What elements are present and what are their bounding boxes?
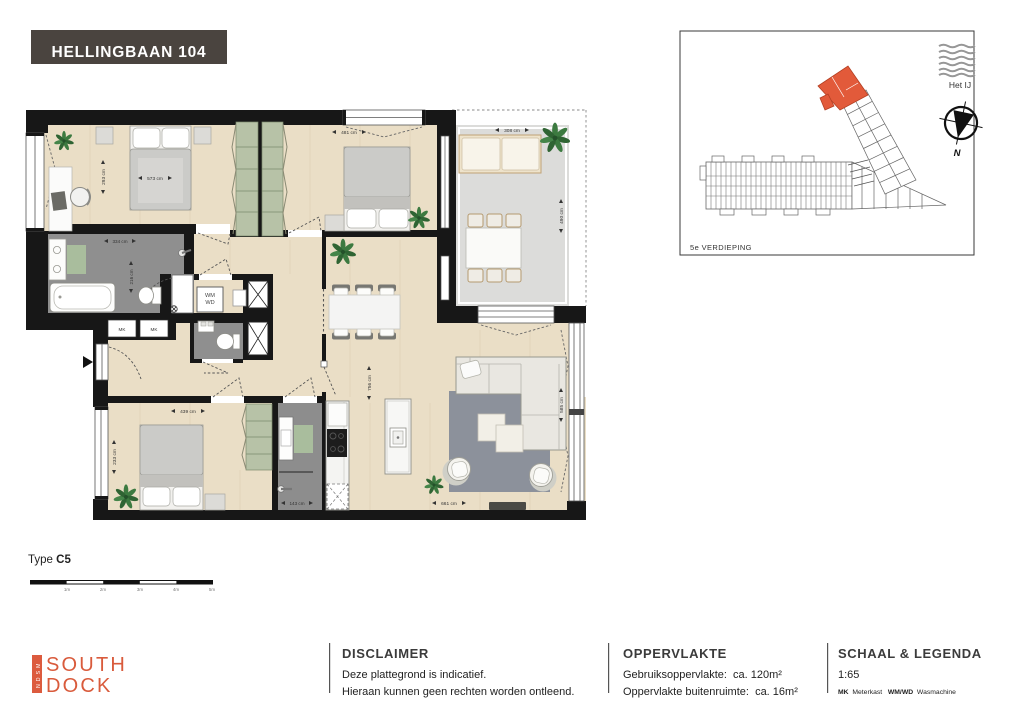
svg-text:573 cm: 573 cm <box>147 176 163 182</box>
svg-text:5m: 5m <box>209 587 216 592</box>
svg-text:3m: 3m <box>137 587 144 592</box>
svg-text:2m: 2m <box>100 587 107 592</box>
svg-text:216 cm: 216 cm <box>129 269 134 284</box>
svg-text:143 cm: 143 cm <box>289 501 304 506</box>
svg-text:439 cm: 439 cm <box>180 409 196 415</box>
svg-text:5e VERDIEPING: 5e VERDIEPING <box>690 243 752 252</box>
svg-text:490 cm: 490 cm <box>559 208 565 224</box>
svg-text:OPPERVLAKTE: OPPERVLAKTE <box>623 646 727 661</box>
svg-text:N D S M: N D S M <box>36 663 42 688</box>
svg-text:Oppervlakte buitenruimte: ca.: Oppervlakte buitenruimte: ca. 16m² <box>623 686 798 698</box>
svg-text:WD: WD <box>205 300 214 306</box>
svg-text:DOCK: DOCK <box>46 675 113 697</box>
svg-text:MK Meterkast WM/WD Wasmach: MK Meterkast WM/WD Wasmachine <box>838 689 956 696</box>
svg-text:661 cm: 661 cm <box>441 501 457 507</box>
svg-text:WM: WM <box>205 293 215 299</box>
svg-text:Het IJ: Het IJ <box>949 80 971 90</box>
svg-text:308 cm: 308 cm <box>504 128 520 134</box>
svg-text:MK: MK <box>119 327 127 332</box>
svg-text:293 cm: 293 cm <box>101 169 107 185</box>
svg-text:N: N <box>954 148 962 159</box>
svg-text:4m: 4m <box>173 587 180 592</box>
svg-text:1m: 1m <box>64 587 71 592</box>
svg-text:SCHAAL & LEGENDA: SCHAAL & LEGENDA <box>838 646 982 661</box>
svg-text:Type C5: Type C5 <box>28 554 71 566</box>
svg-text:Deze plattegrond is indicatief: Deze plattegrond is indicatief. <box>342 669 486 681</box>
svg-text:SOUTH: SOUTH <box>46 654 127 676</box>
svg-text:MK: MK <box>151 327 159 332</box>
svg-text:HELLINGBAAN 104: HELLINGBAAN 104 <box>52 44 207 61</box>
svg-text:756 cm: 756 cm <box>367 375 373 391</box>
svg-text:Gebruiksoppervlakte: ca. 120m: Gebruiksoppervlakte: ca. 120m² <box>623 669 782 681</box>
svg-text:233 cm: 233 cm <box>112 449 118 465</box>
svg-text:Hieraan kunnen geen rechten wo: Hieraan kunnen geen rechten worden ontle… <box>342 686 574 698</box>
svg-text:DISCLAIMER: DISCLAIMER <box>342 646 429 661</box>
svg-text:585 cm: 585 cm <box>559 397 565 413</box>
svg-text:1:65: 1:65 <box>838 669 859 681</box>
svg-text:334 cm: 334 cm <box>112 239 127 244</box>
svg-text:481 cm: 481 cm <box>341 130 357 136</box>
